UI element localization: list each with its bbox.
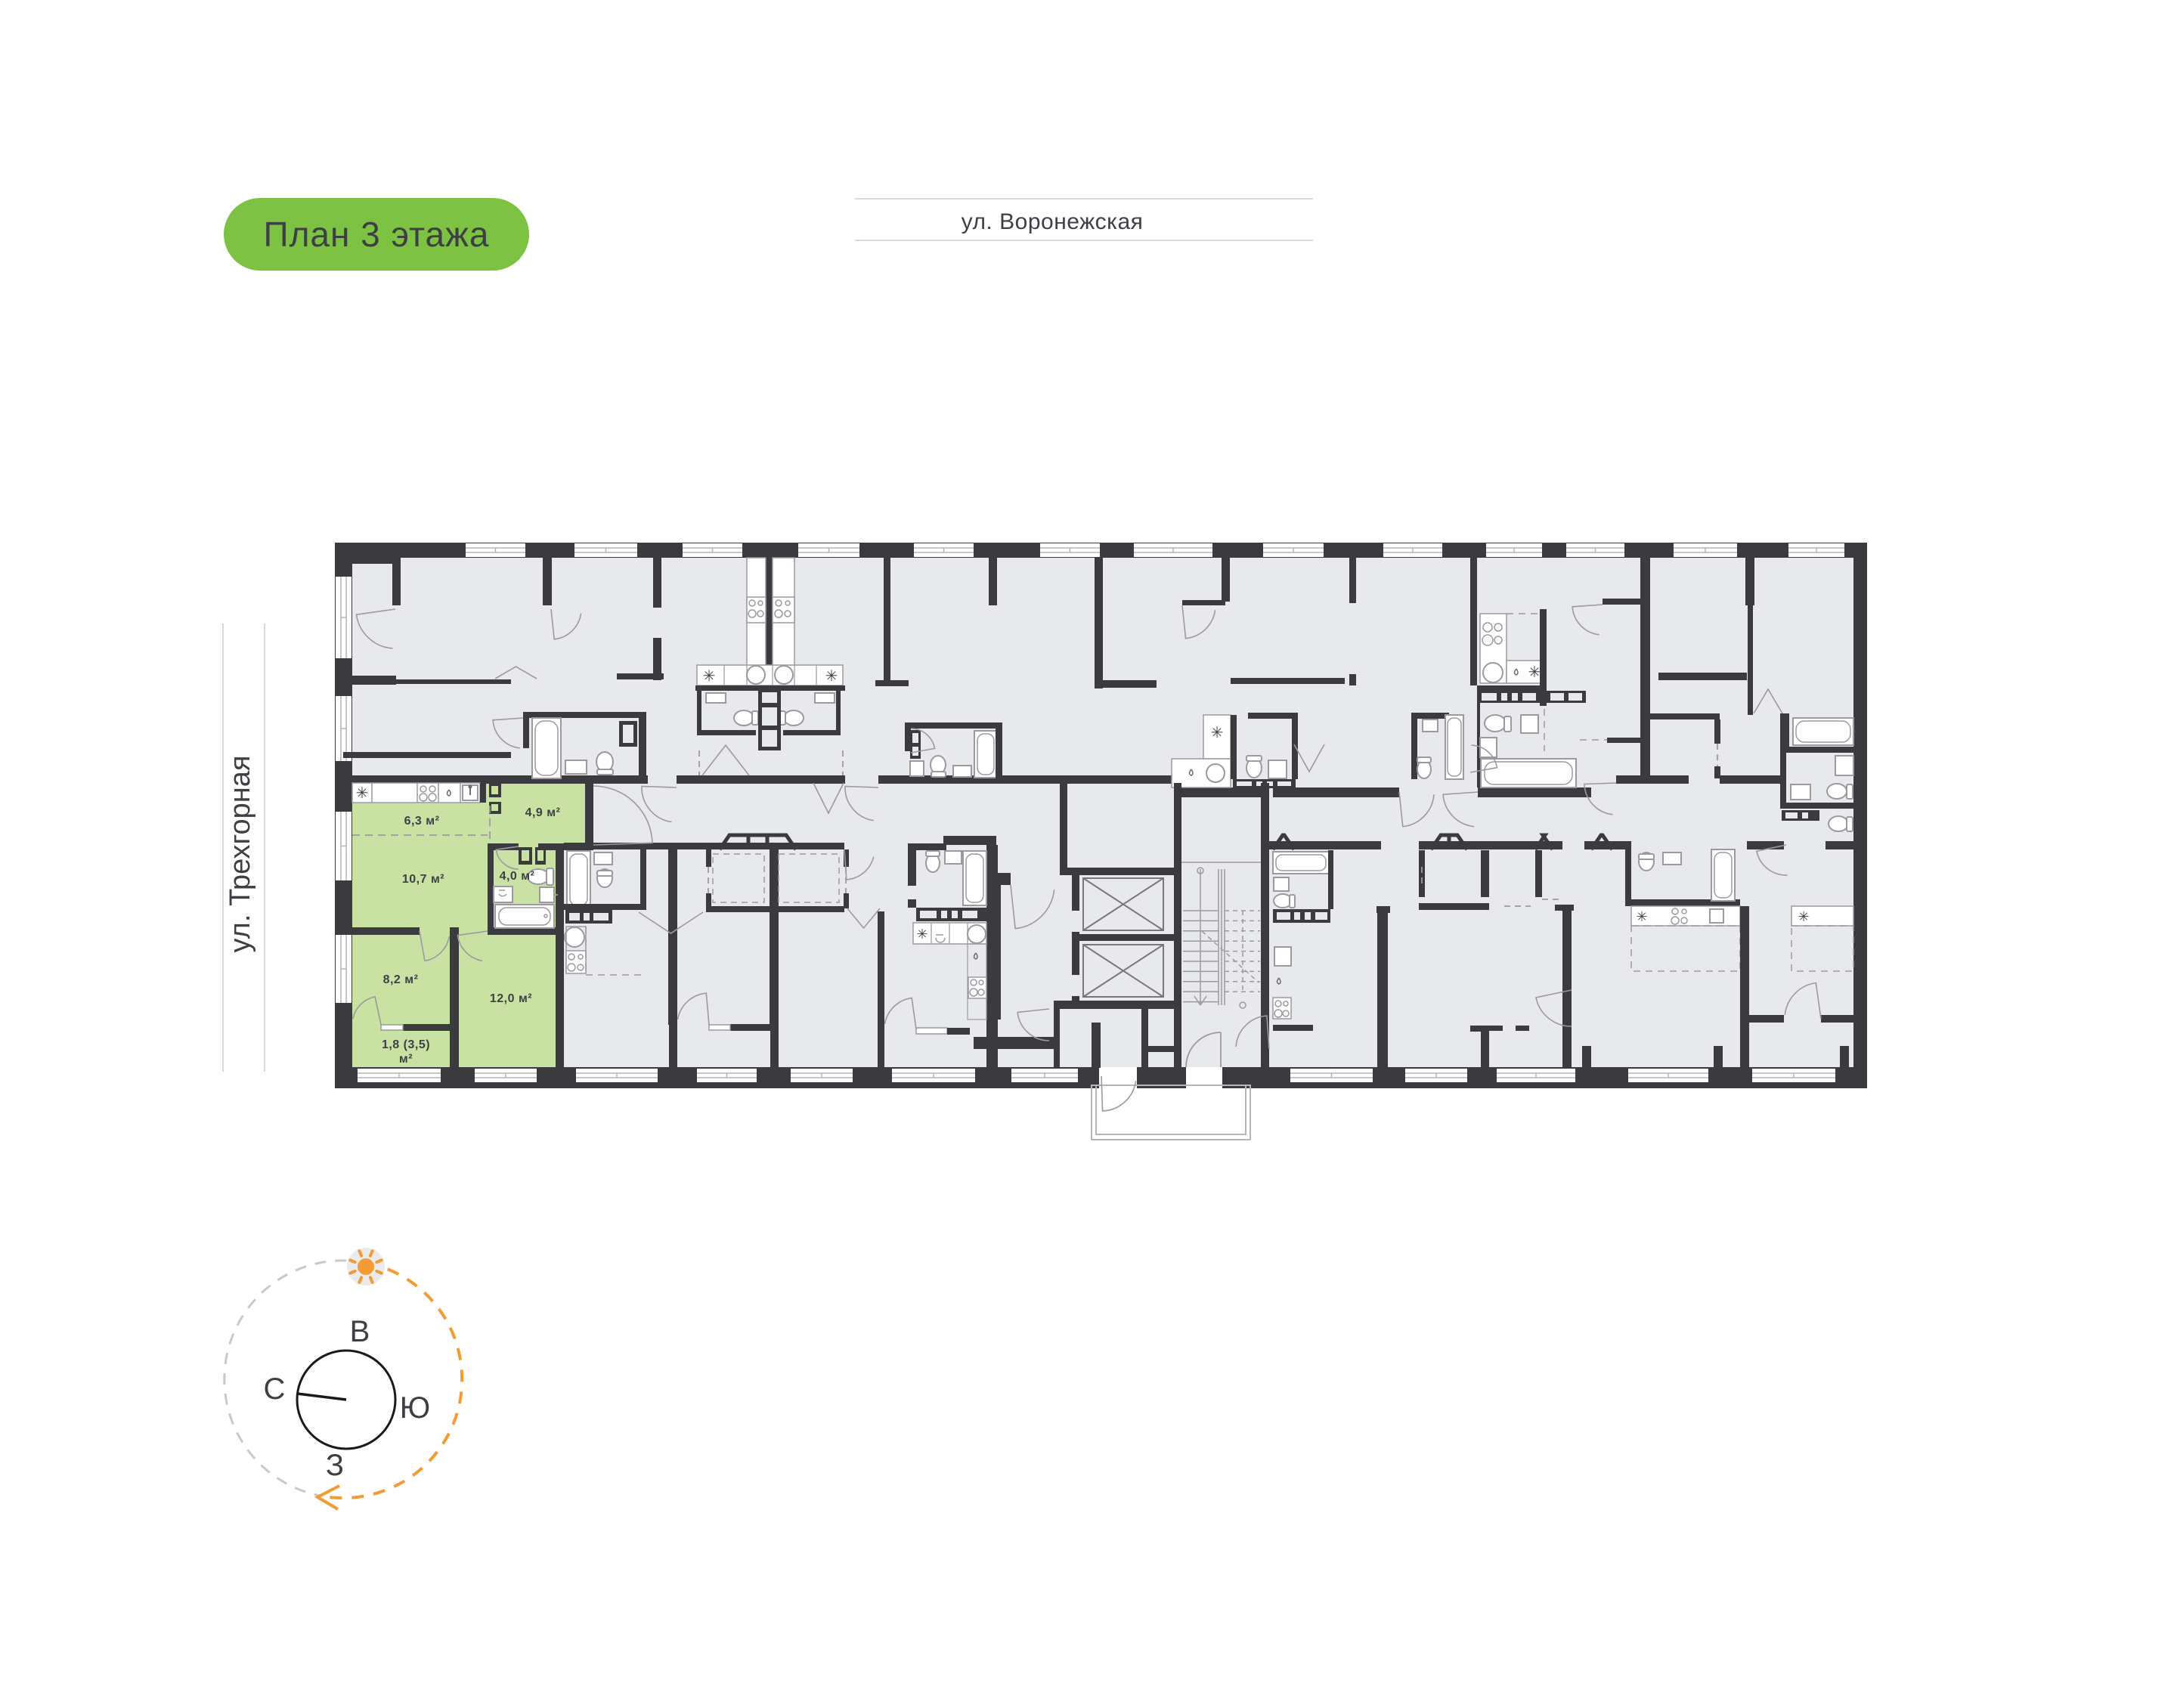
svg-text:✳: ✳ — [703, 668, 716, 685]
svg-text:З: З — [326, 1449, 344, 1482]
svg-text:ул. Трехгорная: ул. Трехгорная — [225, 756, 256, 953]
svg-text:С: С — [264, 1372, 286, 1406]
svg-text:✳: ✳ — [1636, 909, 1647, 924]
svg-text:м²: м² — [399, 1053, 413, 1066]
svg-text:✳: ✳ — [1798, 909, 1809, 924]
svg-text:4,0 м²: 4,0 м² — [500, 870, 535, 883]
svg-text:✳: ✳ — [916, 927, 927, 942]
svg-text:План 3 этажа: План 3 этажа — [264, 215, 490, 254]
svg-text:1,8 (3,5): 1,8 (3,5) — [382, 1038, 430, 1051]
svg-text:В: В — [350, 1315, 370, 1348]
svg-text:4,9 м²: 4,9 м² — [525, 806, 561, 819]
svg-text:10,7 м²: 10,7 м² — [402, 873, 444, 886]
svg-text:Ю: Ю — [400, 1391, 430, 1425]
svg-text:ул. Воронежская: ул. Воронежская — [962, 209, 1144, 234]
svg-text:12,0 м²: 12,0 м² — [490, 992, 532, 1005]
svg-text:8,2 м²: 8,2 м² — [383, 973, 419, 986]
svg-text:✳: ✳ — [825, 668, 838, 685]
svg-text:✳: ✳ — [1528, 664, 1541, 681]
svg-text:✳: ✳ — [356, 785, 369, 802]
svg-text:6,3 м²: 6,3 м² — [404, 815, 440, 828]
svg-text:✳: ✳ — [1211, 725, 1224, 741]
